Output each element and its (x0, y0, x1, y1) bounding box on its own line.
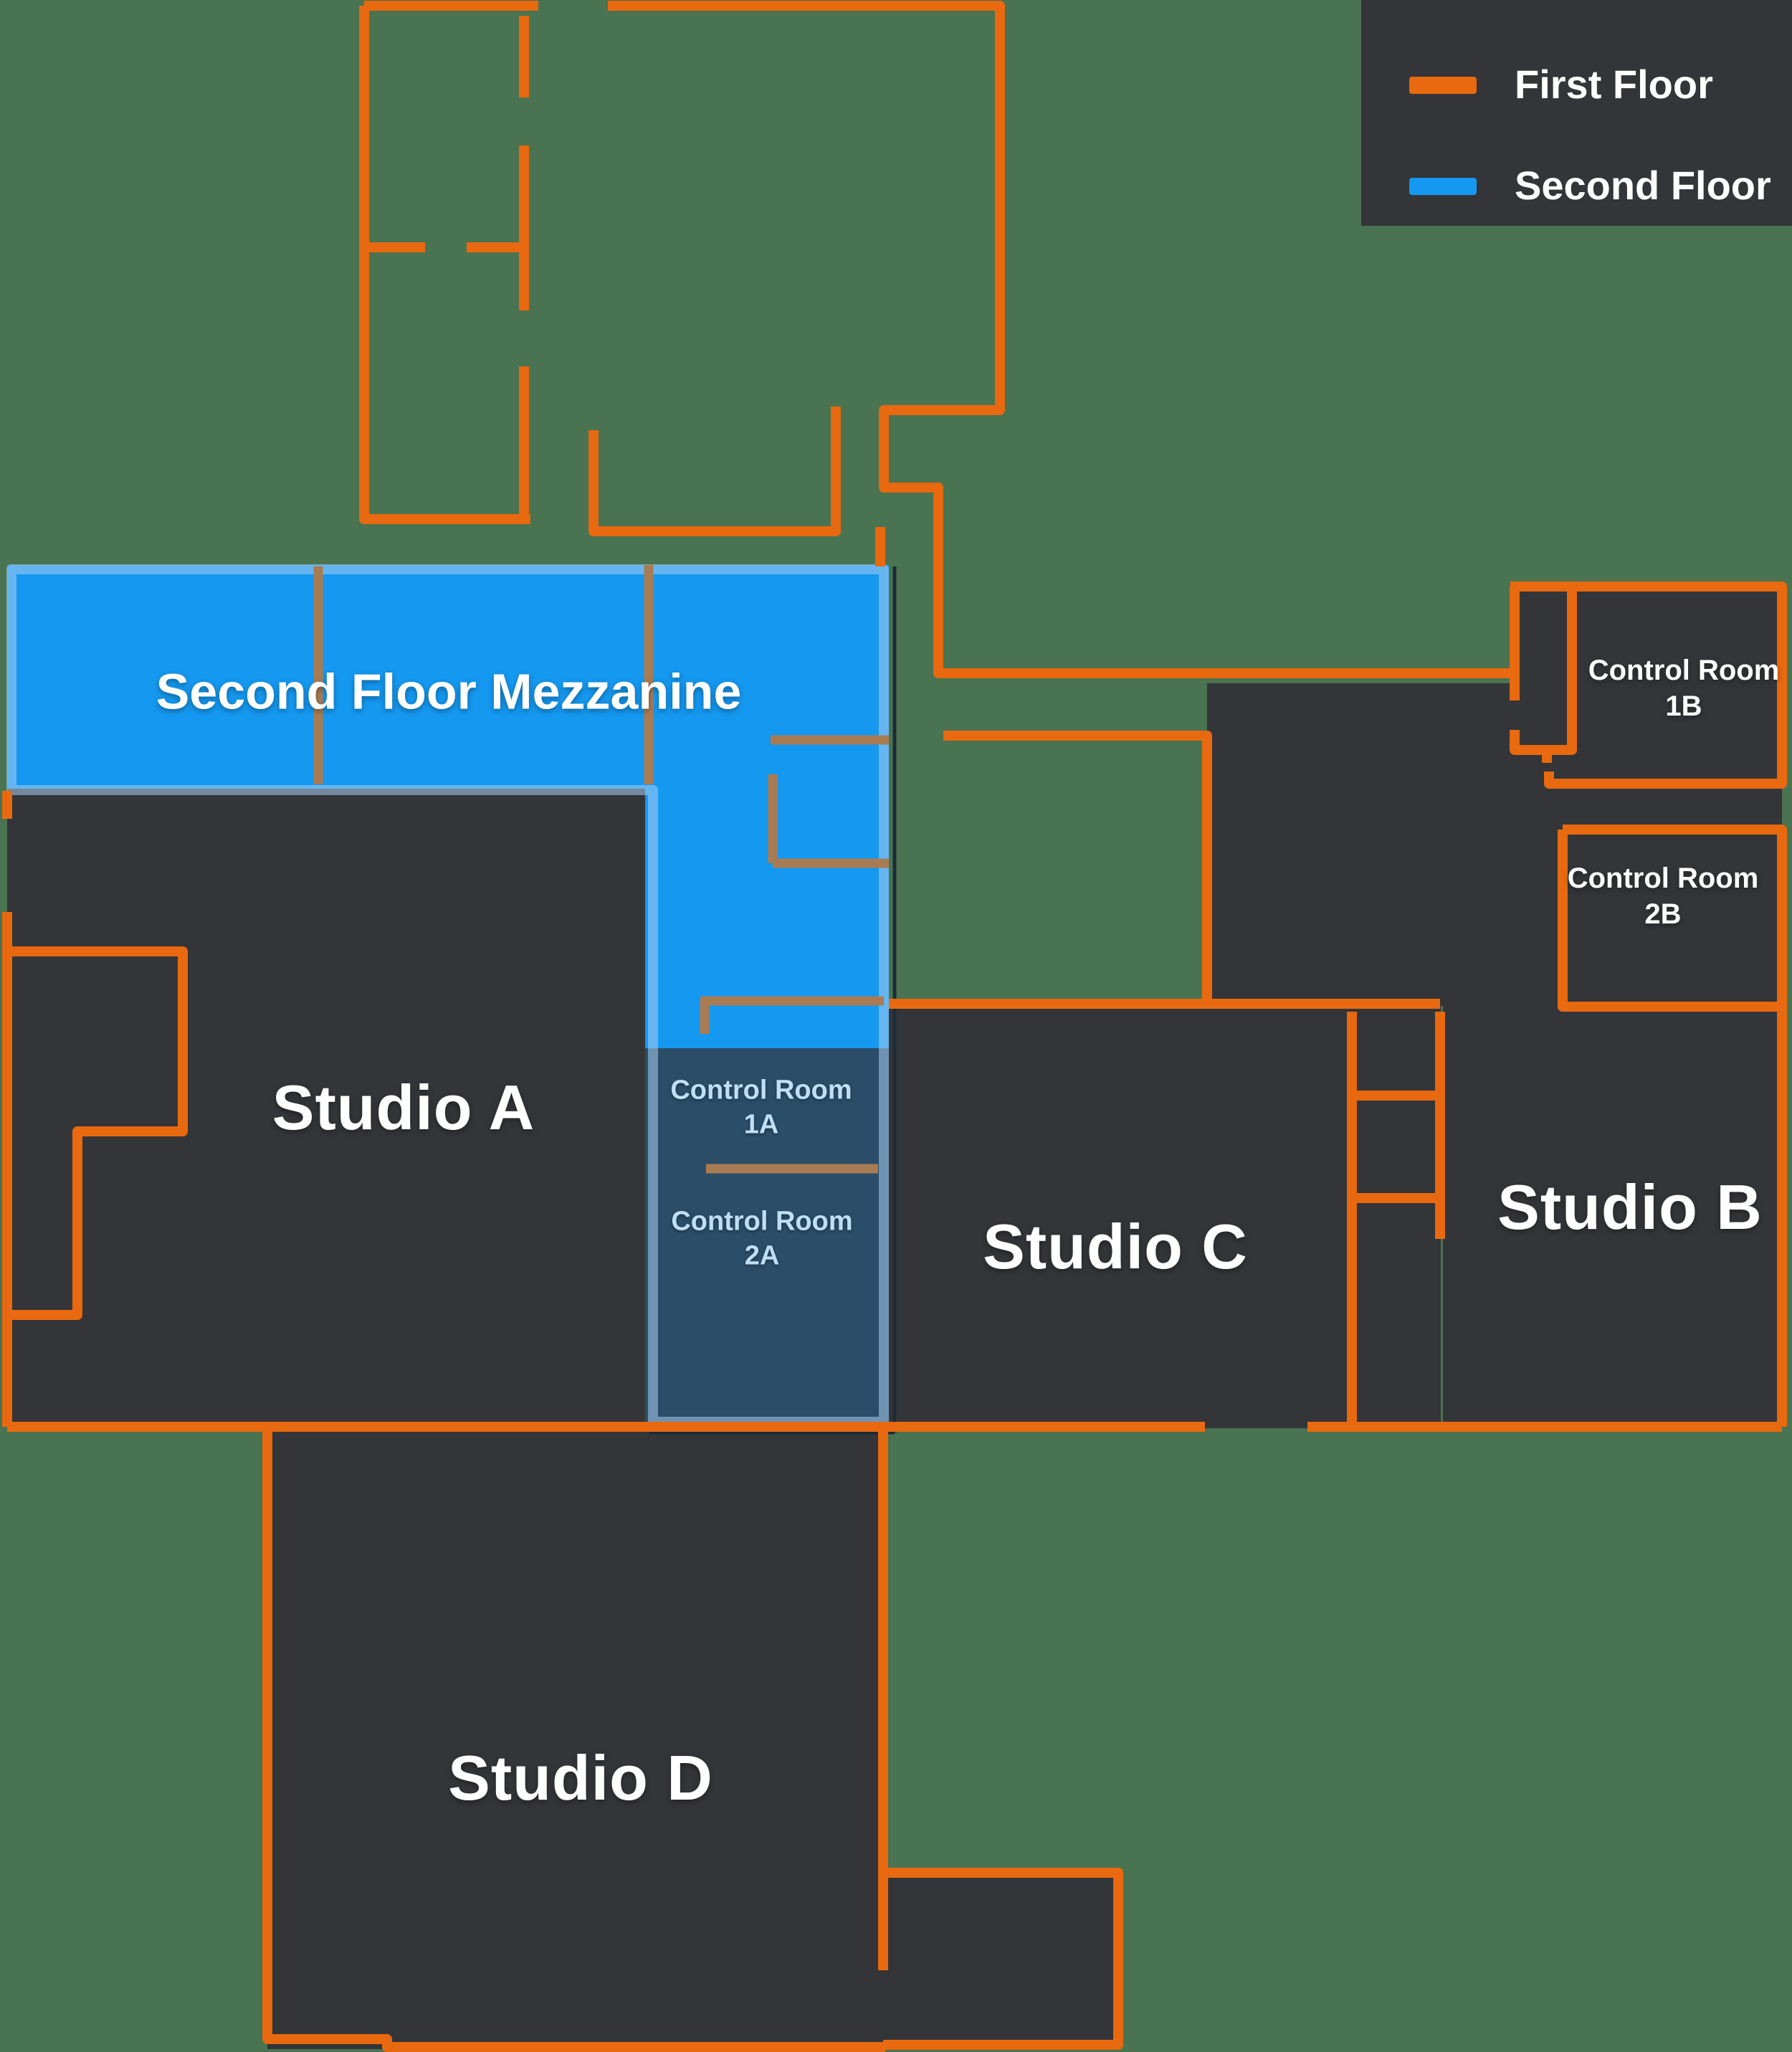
legend-label-second-floor: Second Floor (1515, 162, 1771, 209)
room-label-mezzanine: Second Floor Mezzanine (156, 662, 742, 722)
second-floor-swatch-icon (1409, 178, 1477, 195)
studio-d-annex-block (883, 1873, 1118, 2046)
wall-corridor-lower (943, 736, 1207, 1004)
room-label-studio-d: Studio D (448, 1741, 713, 1815)
first-floor-swatch-icon (1409, 77, 1477, 94)
wall-left-block (364, 6, 530, 519)
studio-c-extension-block (1207, 683, 1444, 1006)
legend: First Floor Second Floor (1361, 0, 1792, 226)
floor-plan-page: { "title": "Studio facility floor plan",… (0, 0, 1792, 2052)
legend-label-first-floor: First Floor (1515, 61, 1713, 108)
studio-d-block (267, 1428, 884, 2049)
room-label-studio-a: Studio A (272, 1070, 535, 1145)
room-label-control-1a: Control Room 1A (661, 1074, 862, 1142)
room-label-studio-c: Studio C (983, 1210, 1248, 1284)
room-label-control-1b: Control Room 1B (1583, 652, 1784, 724)
room-label-control-2a: Control Room 2A (662, 1205, 862, 1273)
mezzanine-column (645, 789, 889, 1048)
room-label-control-2b: Control Room 2B (1563, 860, 1763, 932)
wall-bottom-middle (594, 407, 836, 531)
room-label-studio-b: Studio B (1497, 1170, 1763, 1245)
studio-b-block (1443, 683, 1782, 1427)
floor-plan-svg (0, 0, 1792, 2052)
